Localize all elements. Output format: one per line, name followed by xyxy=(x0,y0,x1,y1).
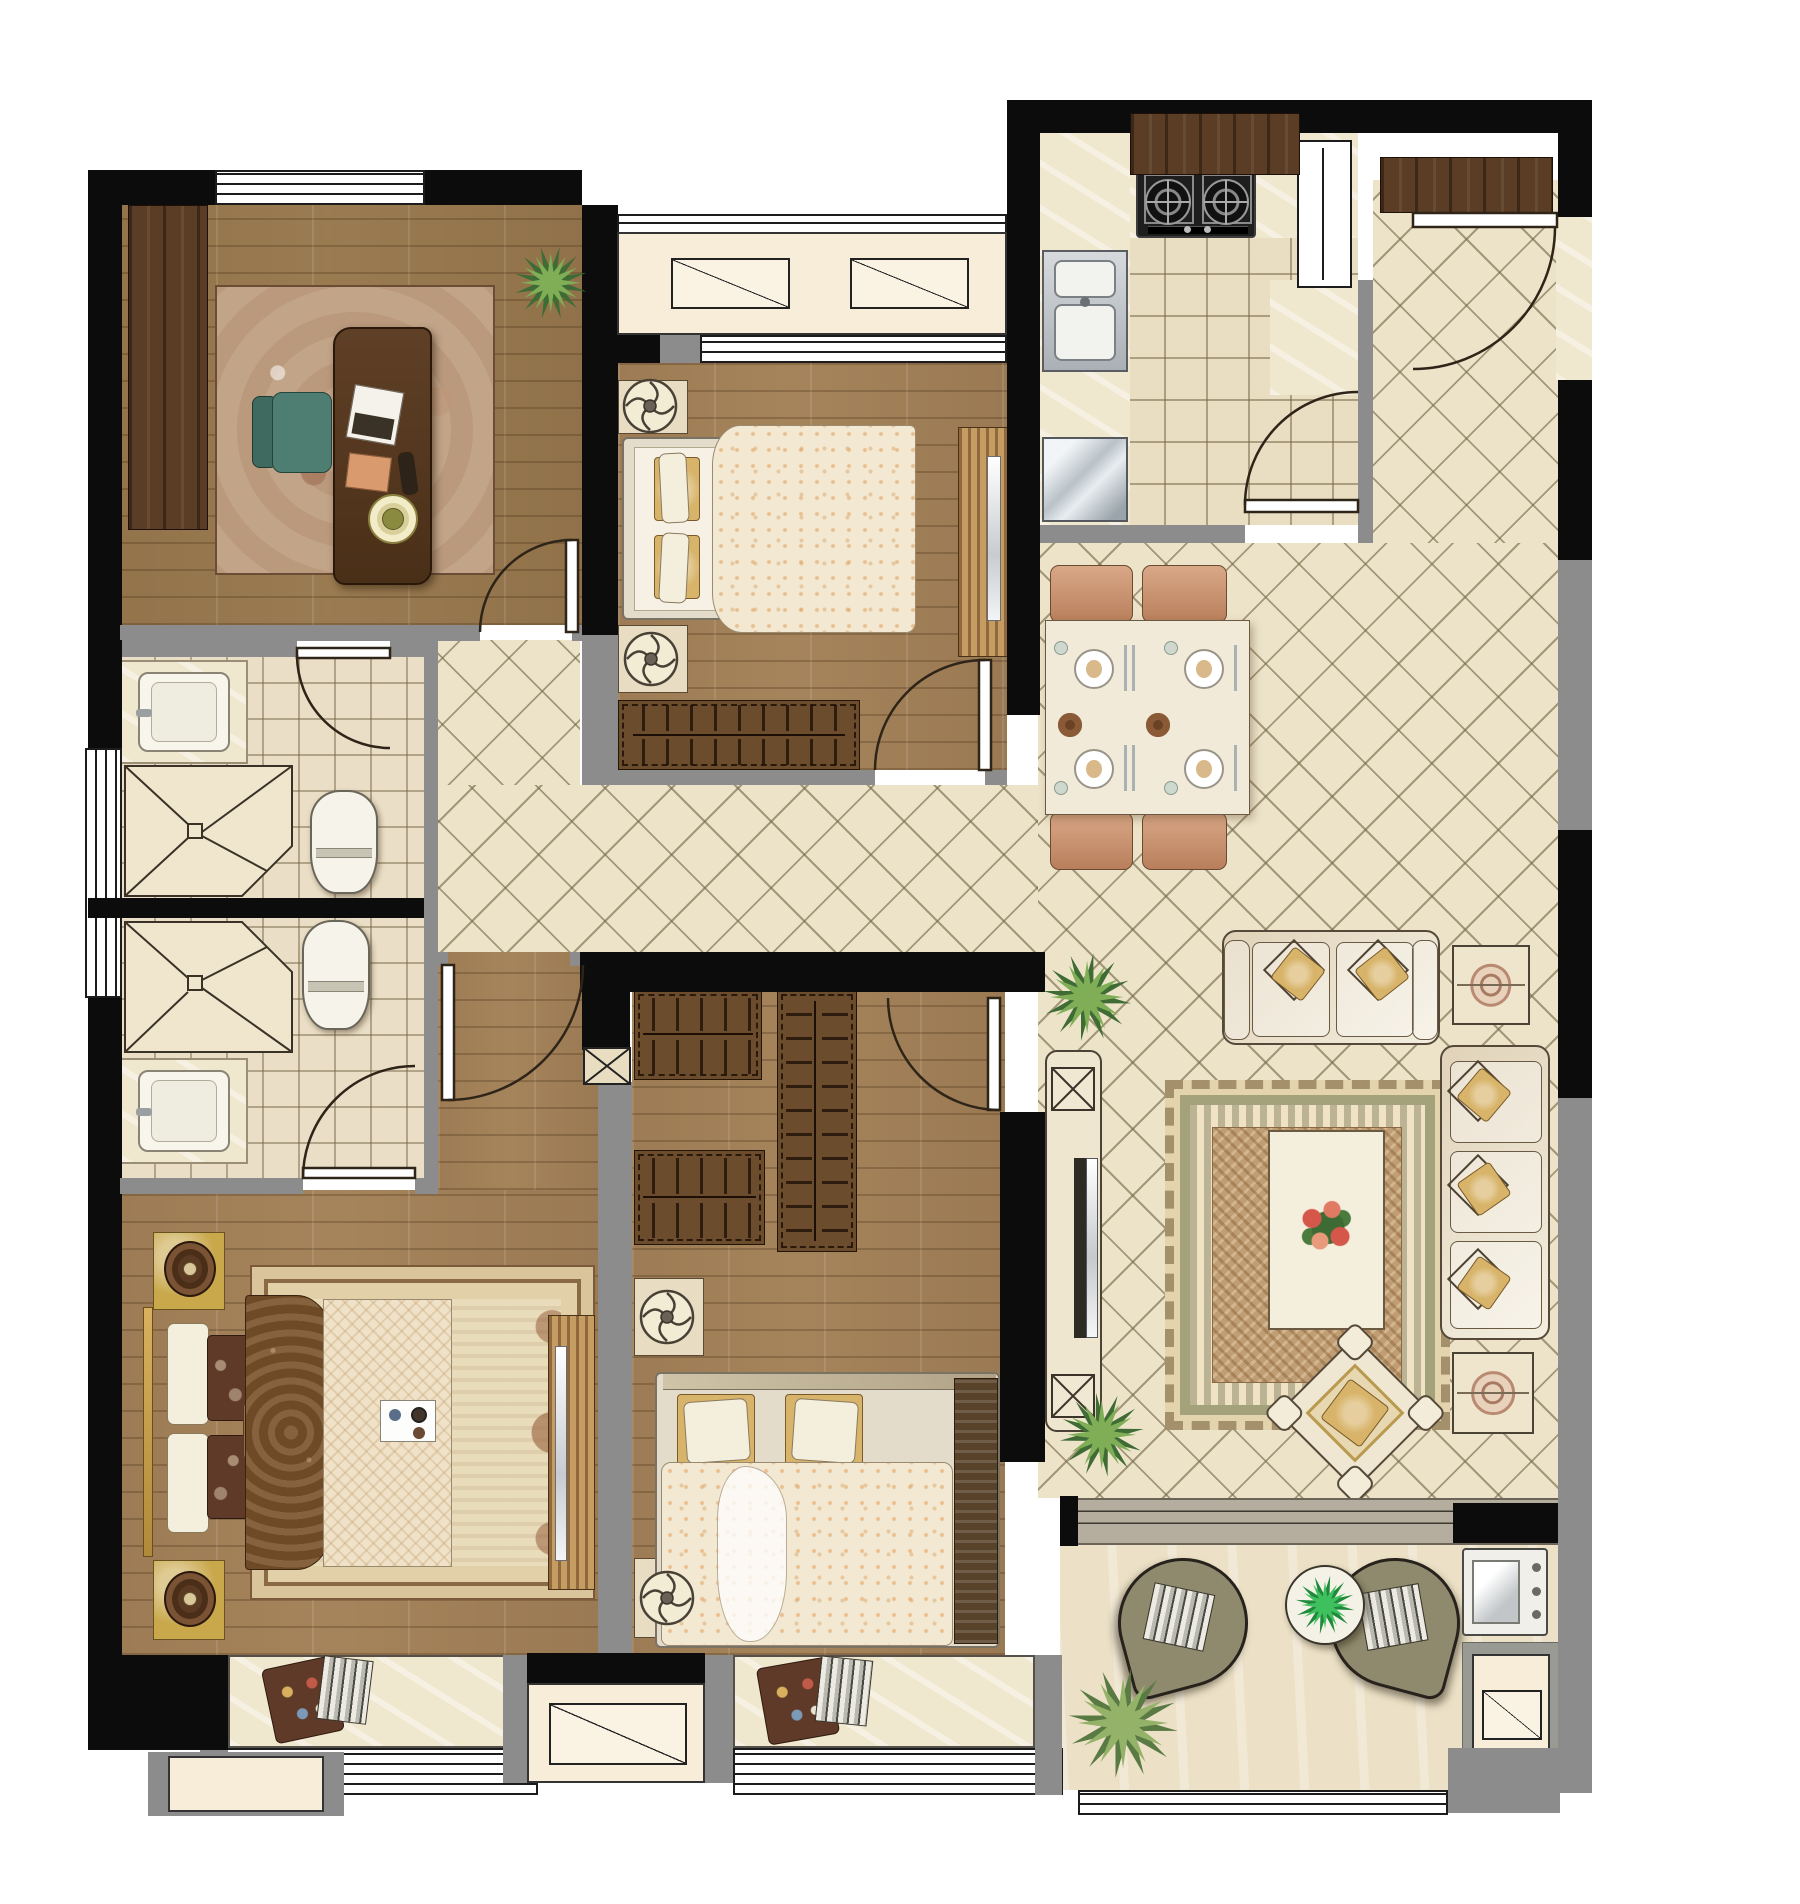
shower-bath2 xyxy=(125,922,292,1052)
door-swings xyxy=(297,213,1557,1178)
symbol-overlay xyxy=(0,0,1800,1904)
column-x xyxy=(584,1048,630,1084)
speaker-icon xyxy=(1052,1068,1094,1417)
fan-lamp-icon xyxy=(624,380,693,1624)
plant-icon xyxy=(506,238,1359,1785)
stove-burners xyxy=(1146,180,1248,224)
floor-plan-canvas xyxy=(0,0,1800,1904)
shower-bath1 xyxy=(125,766,292,896)
